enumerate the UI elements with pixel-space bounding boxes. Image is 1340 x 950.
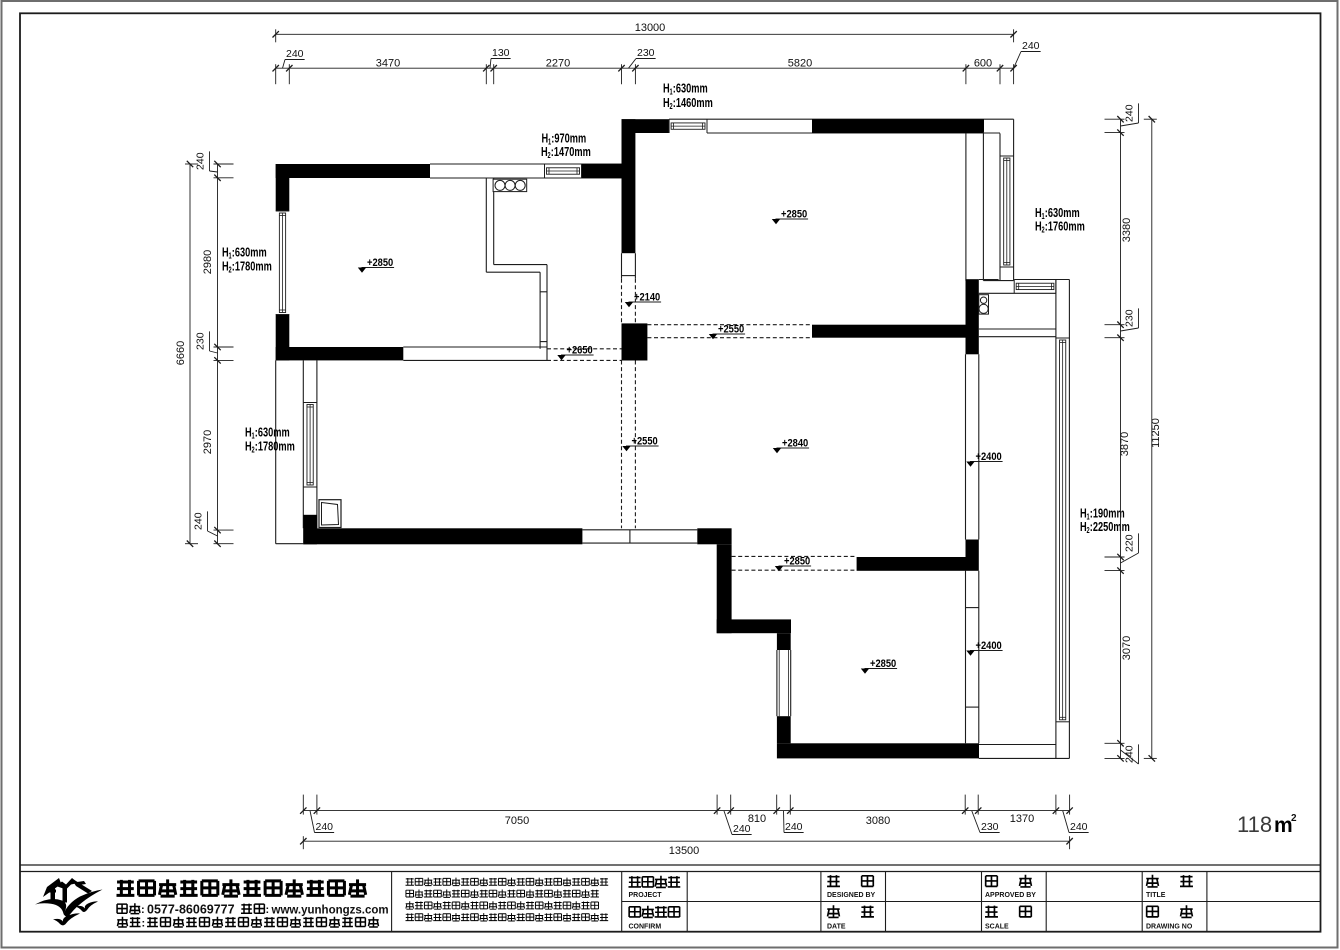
svg-text:6660: 6660 — [175, 341, 187, 365]
svg-text:11250: 11250 — [1150, 418, 1162, 448]
svg-text:240: 240 — [286, 48, 304, 60]
svg-text::630mm: :630mm — [255, 426, 290, 440]
svg-text:13000: 13000 — [635, 22, 666, 34]
svg-text:www.yunhongzs.com: www.yunhongzs.com — [271, 905, 389, 917]
svg-text:240: 240 — [193, 512, 205, 530]
svg-text:H: H — [1080, 521, 1087, 535]
svg-text:2970: 2970 — [202, 430, 214, 454]
svg-text::2250mm: :2250mm — [1090, 521, 1130, 535]
svg-text:PROJECT: PROJECT — [629, 892, 663, 899]
svg-text:118: 118 — [1237, 812, 1272, 837]
svg-text:2980: 2980 — [202, 250, 214, 274]
svg-text:H: H — [245, 440, 252, 454]
svg-text:TITLE: TITLE — [1146, 892, 1166, 899]
svg-text:H: H — [245, 426, 252, 440]
svg-text:DATE: DATE — [827, 924, 846, 931]
svg-text::1460mm: :1460mm — [673, 97, 713, 111]
svg-text:3380: 3380 — [1121, 218, 1133, 242]
svg-text::190mm: :190mm — [1090, 507, 1125, 521]
svg-text:APPROVED BY: APPROVED BY — [985, 892, 1036, 899]
svg-text::630mm: :630mm — [673, 82, 708, 96]
svg-text::630mm: :630mm — [232, 246, 267, 260]
svg-text:13500: 13500 — [669, 845, 700, 857]
svg-text:230: 230 — [1124, 309, 1136, 327]
svg-text:DRAWING NO: DRAWING NO — [1146, 924, 1193, 931]
svg-text::1470mm: :1470mm — [551, 146, 591, 160]
svg-text:230: 230 — [637, 47, 655, 59]
svg-text:600: 600 — [974, 57, 992, 69]
svg-text:H: H — [663, 97, 670, 111]
svg-text:H: H — [222, 246, 229, 260]
svg-text:240: 240 — [316, 821, 334, 833]
svg-text:5820: 5820 — [788, 57, 812, 69]
svg-text:220: 220 — [1124, 534, 1136, 552]
svg-text:H: H — [1035, 207, 1042, 221]
svg-text:H: H — [663, 82, 670, 96]
svg-text:240: 240 — [195, 152, 207, 170]
svg-text:230: 230 — [981, 821, 999, 833]
svg-text:H: H — [541, 146, 548, 160]
svg-text:DESIGNED BY: DESIGNED BY — [827, 892, 876, 899]
svg-text::1760mm: :1760mm — [1045, 220, 1085, 234]
svg-text:3070: 3070 — [1121, 636, 1133, 660]
svg-text:240: 240 — [785, 821, 803, 833]
svg-text:2270: 2270 — [546, 57, 570, 69]
svg-text:230: 230 — [195, 332, 207, 350]
svg-text:7050: 7050 — [505, 815, 529, 827]
svg-text:H: H — [1035, 220, 1042, 234]
svg-text::: : — [266, 904, 270, 916]
svg-text::: : — [141, 904, 145, 916]
svg-text:H: H — [542, 132, 549, 146]
svg-text::: : — [142, 918, 146, 930]
svg-text:3470: 3470 — [376, 57, 400, 69]
svg-text:3080: 3080 — [866, 815, 890, 827]
svg-text:H: H — [222, 260, 229, 274]
svg-text:2: 2 — [1291, 813, 1297, 824]
svg-text:130: 130 — [492, 47, 510, 59]
svg-text::970mm: :970mm — [551, 132, 586, 146]
svg-text:0577-86069777: 0577-86069777 — [147, 903, 235, 917]
svg-text:3870: 3870 — [1119, 432, 1131, 456]
svg-text:240: 240 — [1124, 745, 1136, 763]
svg-text:m: m — [1274, 814, 1293, 837]
svg-text::1780mm: :1780mm — [232, 260, 272, 274]
svg-text:240: 240 — [1022, 40, 1040, 52]
svg-text::1780mm: :1780mm — [255, 440, 295, 454]
svg-text:1370: 1370 — [1010, 813, 1034, 825]
svg-text:SCALE: SCALE — [985, 924, 1009, 931]
svg-text:810: 810 — [748, 813, 766, 825]
svg-text:H: H — [1080, 507, 1087, 521]
svg-text:240: 240 — [1070, 821, 1088, 833]
svg-text:CONFIRM: CONFIRM — [629, 924, 662, 931]
svg-text:240: 240 — [1124, 104, 1136, 122]
svg-text::630mm: :630mm — [1045, 207, 1080, 221]
